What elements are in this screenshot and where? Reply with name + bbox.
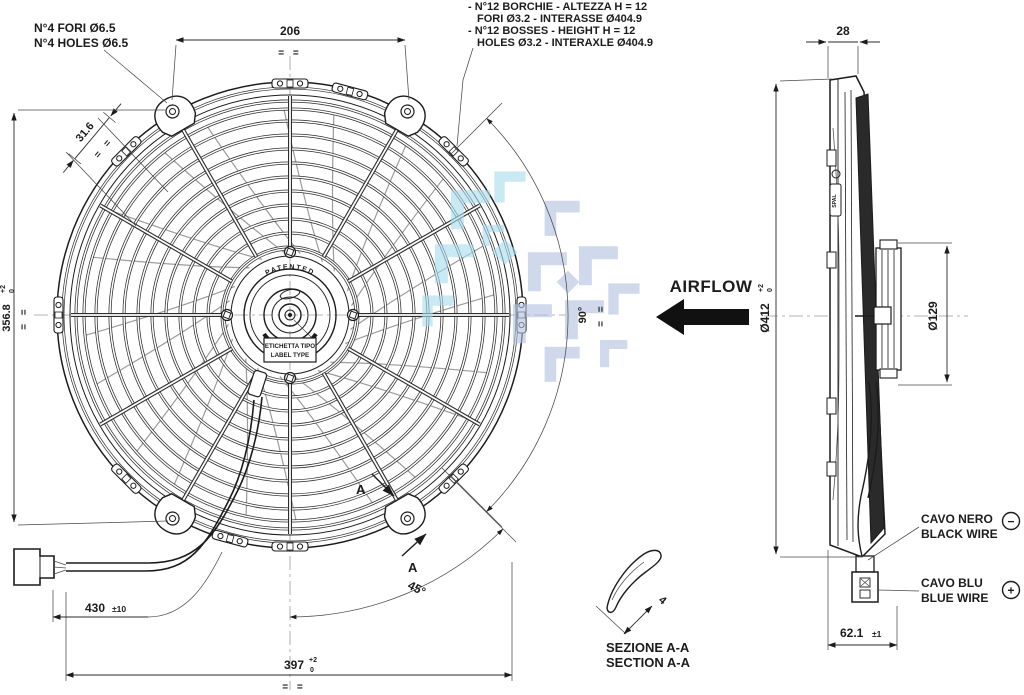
dim-90-eq: = =: [596, 303, 607, 326]
wire-labels: CAVO NERO BLACK WIRE − CAVO BLU BLUE WIR…: [868, 512, 1020, 605]
connector-plug: [14, 549, 54, 585]
dim-356-8-tol-dn: 0: [9, 289, 16, 293]
wire-black-line2: BLACK WIRE: [921, 527, 998, 541]
note-bosses-line3: - N°12 BOSSES - HEIGHT H = 12: [468, 25, 635, 37]
type-label-line1: ETICHETTA TIPO: [265, 343, 315, 350]
dim-356-8: 356.8: [1, 304, 13, 332]
section-marker-a2: A: [408, 560, 418, 575]
dim-412-tol-dn: 0: [767, 288, 774, 292]
dim-397-tol-dn: 0: [310, 667, 314, 674]
dim-397-tol-up: +2: [309, 657, 317, 664]
dim-412: Ø412: [758, 303, 772, 333]
dim-62-1-tol: ±1: [872, 629, 882, 639]
note-mount-holes: N°4 FORI Ø6.5 N°4 HOLES Ø6.5: [34, 21, 167, 103]
airflow-arrow-icon: [656, 299, 749, 335]
fan-side-view: SPAL: [827, 76, 901, 602]
fan-technical-drawing: PATENTED ETICHETTA TIPO LABEL TYPE: [0, 0, 1024, 695]
dim-430: 430: [85, 601, 105, 615]
dim-206-eq: = =: [278, 48, 301, 59]
dim-31-6-eq: = =: [92, 136, 116, 161]
dim-129: Ø129: [926, 301, 940, 331]
note-bosses: - N°12 BORCHIE - ALTEZZA H = 12 FORI Ø3.…: [457, 1, 653, 146]
note-bosses-line4: HOLES Ø3.2 - INTERAXLE Ø404.9: [477, 37, 653, 49]
dim-90: 90°: [577, 307, 589, 324]
wire-blue-line1: CAVO BLU: [921, 576, 983, 590]
dim-4: 4: [656, 594, 669, 608]
section-marker-a1: A: [356, 482, 366, 497]
dim-28: 28: [836, 24, 850, 38]
dim-206: 206: [280, 24, 300, 38]
dim-356-8-eq: = =: [19, 306, 30, 329]
airflow-label: AIRFLOW: [670, 277, 753, 296]
dim-397: 397: [284, 658, 304, 672]
wire-blue-line2: BLUE WIRE: [921, 591, 988, 605]
dim-45: 45°: [406, 578, 429, 599]
section-title-line1: SEZIONE A-A: [606, 640, 690, 655]
dim-430-tol: ±10: [112, 604, 126, 614]
dim-31-6: 31.6: [74, 120, 97, 144]
dim-412-tol-up: +2: [758, 284, 765, 292]
dim-356-8-tol-up: +2: [0, 285, 7, 293]
type-label-line2: LABEL TYPE: [271, 352, 309, 359]
dim-bracket-offset: 31.6 = =: [52, 94, 137, 186]
dim-motor-diameter: Ø129: [898, 243, 952, 385]
note-bosses-line1: - N°12 BORCHIE - ALTEZZA H = 12: [468, 1, 647, 13]
polarity-plus-glyph: +: [1007, 584, 1014, 598]
note-bosses-line2: FORI Ø3.2 - INTERASSE Ø404.9: [477, 13, 642, 25]
note-holes-line2: N°4 HOLES Ø6.5: [34, 36, 128, 50]
dim-front-depth: 28: [806, 24, 880, 78]
airflow-indicator: AIRFLOW: [656, 277, 753, 335]
dim-overall-width: 397 +2 0 = =: [66, 562, 512, 693]
dim-62-1: 62.1: [840, 626, 864, 640]
brand-watermark: [415, 164, 640, 382]
note-holes-line1: N°4 FORI Ø6.5: [34, 21, 116, 35]
drawing-svg: PATENTED ETICHETTA TIPO LABEL TYPE: [0, 0, 1024, 695]
wire-black-line1: CAVO NERO: [921, 512, 993, 526]
polarity-minus-glyph: −: [1007, 515, 1014, 529]
dim-397-eq: = =: [282, 682, 305, 693]
section-detail: 4 SEZIONE A-A SECTION A-A: [596, 550, 691, 670]
section-title-line2: SECTION A-A: [606, 655, 691, 670]
side-brand-text: SPAL: [832, 193, 838, 207]
fan-front-view: PATENTED ETICHETTA TIPO LABEL TYPE: [14, 79, 526, 585]
